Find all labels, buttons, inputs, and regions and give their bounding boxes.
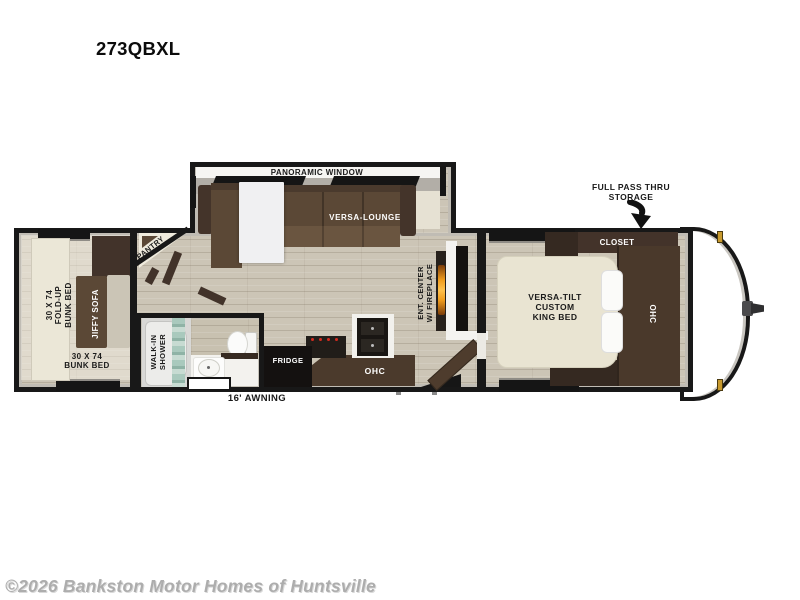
bath-mat [187,377,231,391]
watermark: ©2026 Bankston Motor Homes of Huntsville [5,576,376,597]
stove-knob-icon [327,338,330,341]
marker-light-icon [717,379,723,391]
lounge-seat [283,226,400,247]
kitchen-ohc-label: OHC [353,366,397,376]
marker-light-icon [717,231,723,243]
king-bed-label: VERSA-TILT CUSTOM KING BED [515,292,595,322]
lounge-seat [211,183,242,268]
lounge-end-table [416,191,440,229]
hitch-coupler-icon [751,303,764,314]
window [190,176,196,208]
faucet-icon [371,327,374,330]
bunk-bed-label: 30 X 74 BUNK BED [57,351,117,371]
shower-glass [172,318,185,387]
window [440,166,446,196]
jiffy-sofa-label: JIFFY SOFA [91,284,101,344]
storage-arrow-icon [614,200,658,230]
stove-knob-icon [311,338,314,341]
bunk-bedding [107,275,130,348]
ent-center-label: ENT. CENTER W/ FIREPLACE [416,261,436,325]
stove-knob-icon [319,338,322,341]
storage-callout-label: FULL PASS THRU STORAGE [581,182,681,202]
step-mount [432,392,437,395]
page-title: 273QBXL [96,38,180,60]
pillow [601,312,623,353]
faucet-icon [371,344,374,347]
bedroom-ohc-label: OHC [647,302,657,326]
step-mount [396,392,401,395]
panoramic-window-label: PANORAMIC WINDOW [247,167,387,178]
fridge-label: FRIDGE [266,356,310,367]
bedroom-doorway [477,333,486,359]
stove-knob-icon [335,338,338,341]
awning-label: 16' AWNING [207,392,307,405]
fold-up-bunk-label: 30 X 74 FOLD-UP BUNK BED [45,280,73,330]
versa-lounge-label: VERSA-LOUNGE [320,213,410,223]
lounge-armrest [400,185,416,236]
walk-in-shower-label: WALK-IN SHOWER [149,330,169,374]
pillow [601,270,623,311]
vanity-ledge [221,353,258,359]
fireplace-flame-icon [438,265,445,315]
closet-label: CLOSET [587,238,647,247]
floorplan-page: 273QBXL PANORAMIC WINDOW VERSA-LOUNGE 30… [0,0,800,600]
lounge-table [239,182,284,263]
sink-drain-icon [207,366,210,369]
tv [456,246,468,332]
bunk-cabinet [92,236,130,277]
interior-wall [477,228,486,392]
